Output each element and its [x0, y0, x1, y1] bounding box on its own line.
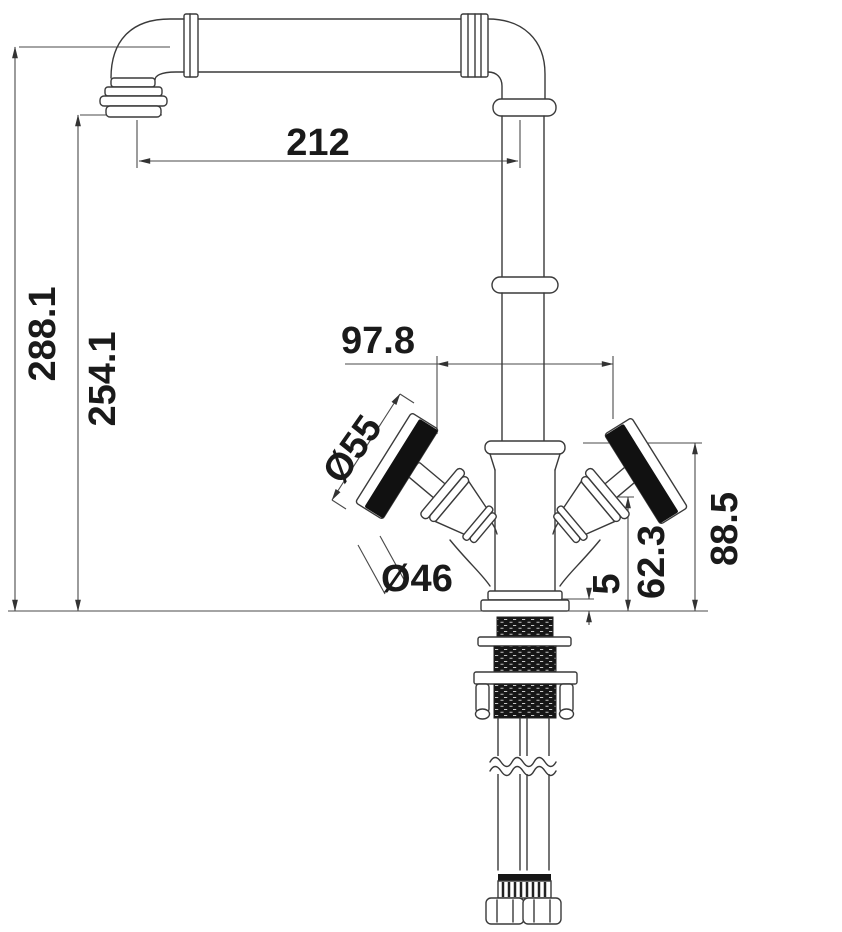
- label-spout-reach: 212: [286, 122, 349, 164]
- riser-pipe: [488, 19, 558, 441]
- dimension-labels: 288.1 254.1 212 97.8 Ø55 Ø46 5 62.3 88.5: [22, 122, 746, 600]
- mounting-washer: [478, 637, 571, 646]
- supply-hoses: [486, 718, 561, 924]
- label-handle-span: 97.8: [341, 320, 415, 362]
- hose-nut-left: [486, 898, 524, 924]
- body-cap: [485, 441, 565, 454]
- label-valve-height: 62.3: [631, 525, 673, 599]
- bracket-stud-right: [560, 684, 573, 712]
- hose-nut-right: [523, 898, 561, 924]
- faucet-outline: [100, 14, 688, 924]
- riser-collar-lower: [492, 277, 558, 293]
- aerator-tip: [106, 106, 161, 117]
- dimension-handle-span: [345, 356, 613, 434]
- spout-pipe: [184, 14, 488, 77]
- label-base-plate-height: 5: [586, 573, 628, 594]
- bracket-stud-left: [476, 684, 489, 712]
- mounting-bracket: [474, 672, 577, 684]
- riser-collar-upper: [493, 99, 556, 116]
- mounting-shank: [474, 617, 577, 719]
- label-body-diameter: Ø46: [381, 558, 453, 600]
- hose-ferrule: [498, 874, 551, 881]
- label-handle-height: 88.5: [704, 492, 746, 566]
- technical-drawing-page: 288.1 254.1 212 97.8 Ø55 Ø46 5 62.3 88.5: [0, 0, 842, 932]
- label-overall-height: 288.1: [22, 286, 64, 381]
- aerator-neck: [111, 78, 155, 87]
- faucet-dimension-drawing: 288.1 254.1 212 97.8 Ø55 Ø46 5 62.3 88.5: [0, 0, 842, 932]
- base-ring: [488, 591, 562, 600]
- spout-outlet: [100, 19, 184, 117]
- spout-flange-left: [184, 14, 198, 77]
- label-spout-outlet-height: 254.1: [82, 331, 124, 426]
- base-plate: [481, 600, 569, 611]
